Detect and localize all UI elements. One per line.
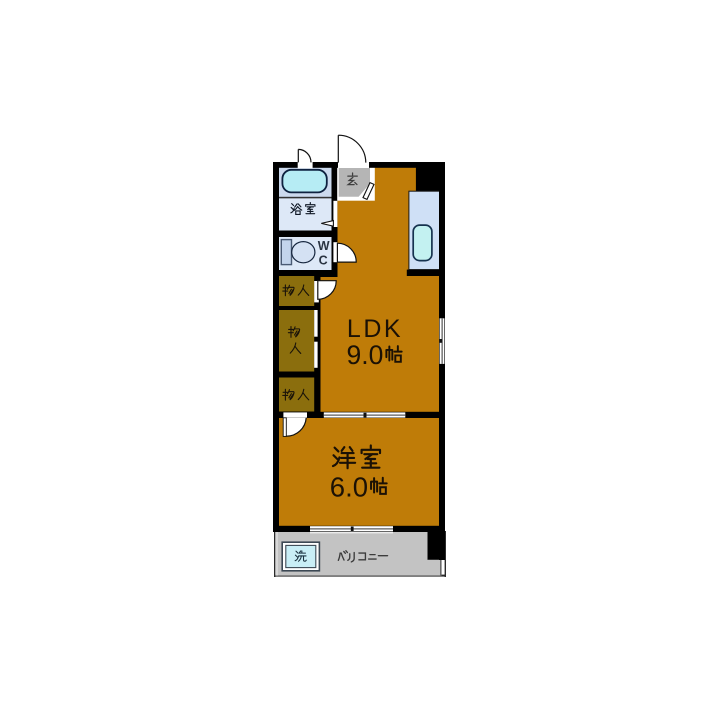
svg-text:W: W — [318, 239, 330, 253]
svg-text:LDK: LDK — [347, 315, 403, 343]
svg-text:C: C — [319, 253, 328, 267]
svg-text:6.0: 6.0 — [330, 471, 368, 502]
svg-text:9.0: 9.0 — [347, 340, 384, 370]
